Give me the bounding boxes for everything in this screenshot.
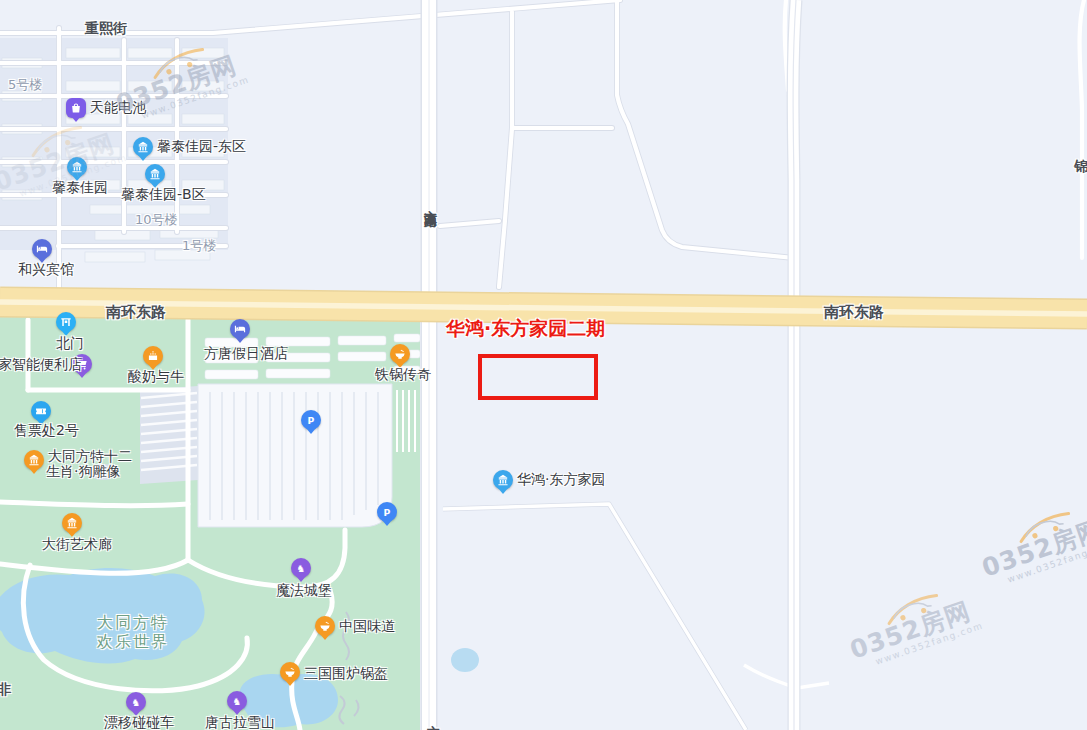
watermark-site-text: www.0352fang.com — [1006, 538, 1087, 584]
map-canvas[interactable]: ♞ P — [0, 0, 1087, 730]
brand-watermark: 0352房网www.0352fang.com — [841, 578, 985, 673]
brand-watermark: 0352房网www.0352fang.com — [973, 496, 1087, 591]
watermark-brand-text: 0352房网 — [979, 516, 1087, 581]
watermark-car-icon — [880, 588, 944, 628]
watermark-brand-text: 0352房网 — [113, 52, 240, 117]
watermark-car-icon — [146, 42, 210, 82]
brand-watermark: 0352房网www.0352fang.com — [0, 110, 129, 205]
watermark-car-icon — [24, 120, 88, 160]
watermark-site-text: www.0352fang.com — [140, 74, 250, 120]
watermark-layer: 0352房网www.0352fang.com0352房网www.0352fang… — [0, 0, 1087, 730]
brand-watermark: 0352房网www.0352fang.com — [107, 32, 251, 127]
watermark-brand-text: 0352房网 — [847, 598, 974, 663]
watermark-car-icon — [1012, 506, 1076, 546]
watermark-site-text: www.0352fang.com — [18, 152, 128, 198]
watermark-site-text: www.0352fang.com — [874, 620, 984, 666]
watermark-brand-text: 0352房网 — [0, 130, 118, 195]
